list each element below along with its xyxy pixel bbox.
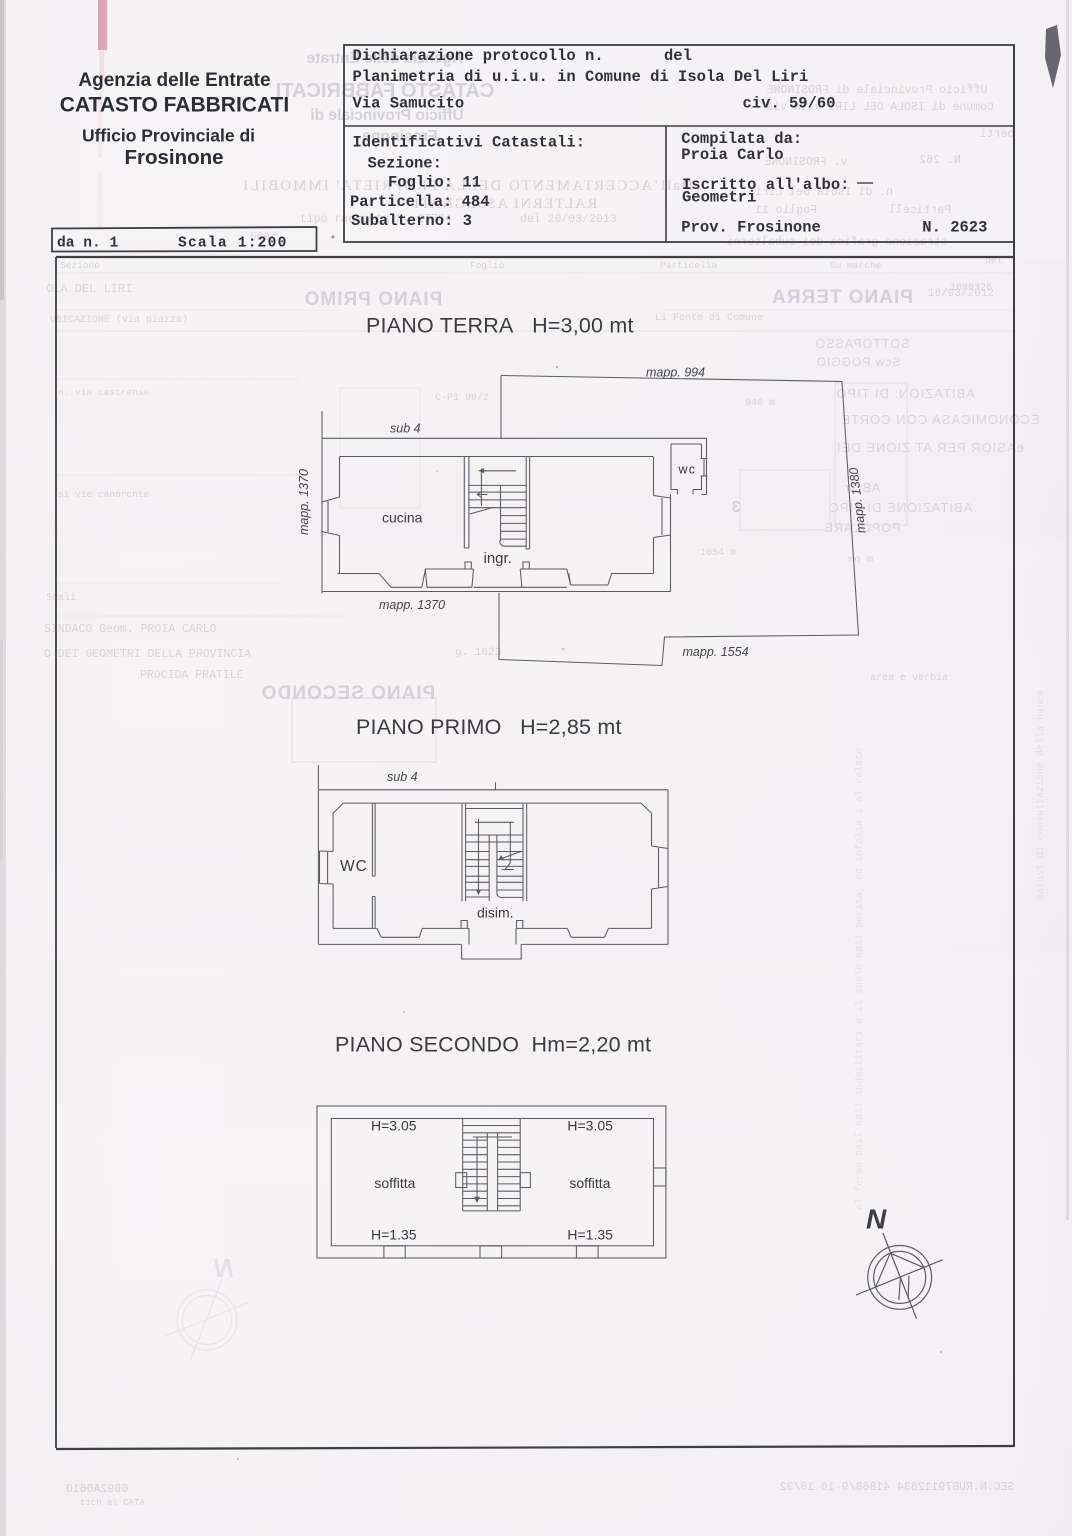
svg-text:0092A0610: 0092A0610	[66, 1483, 128, 1496]
svg-text:N: N	[213, 1253, 233, 1283]
svg-text:Foglio 11: Foglio 11	[755, 204, 817, 217]
svg-text:Via Samucito: Via Samucito	[353, 95, 465, 113]
svg-text:Prov. Frosinone: Prov. Frosinone	[681, 219, 821, 237]
svg-text:3: 3	[731, 499, 740, 516]
svg-text:Frosinone: Frosinone	[124, 146, 223, 169]
svg-text:OLA DEL LIRI: OLA DEL LIRI	[46, 282, 132, 296]
svg-text:del 20/03/2013: del 20/03/2013	[520, 213, 617, 226]
svg-text:wc: wc	[678, 463, 697, 477]
svg-text:Sezione: Sezione	[60, 260, 100, 271]
svg-text:soffitta: soffitta	[569, 1175, 610, 1191]
svg-text:Dichiarazione protocollo n.: Dichiarazione protocollo n.	[353, 47, 604, 65]
svg-text:Foglio: 11: Foglio: 11	[388, 174, 481, 192]
svg-text:mapp. 1370: mapp. 1370	[297, 469, 311, 535]
svg-text:sub 4: sub 4	[390, 422, 421, 436]
svg-text:Identificativi Catastali:: Identificativi Catastali:	[353, 134, 586, 152]
svg-text:ABITAZION: DI TIPO: ABITAZION: DI TIPO	[835, 386, 975, 401]
svg-text:PROCIDA PRATILE: PROCIDA PRATILE	[140, 669, 244, 682]
svg-text:H=1.35: H=1.35	[567, 1227, 613, 1243]
svg-text:si vie canorchie: si vie canorchie	[58, 489, 150, 500]
svg-text:PIANO TERRA H=3,00 mt: PIANO TERRA H=3,00 mt	[366, 314, 634, 338]
svg-text:Scali: Scali	[46, 592, 76, 604]
svg-text:Subalterno: 3: Subalterno: 3	[351, 212, 472, 230]
svg-text:mapp. 1554: mapp. 1554	[683, 645, 749, 659]
svg-text:H=1.35: H=1.35	[371, 1227, 417, 1243]
svg-text:mapp. 994: mapp. 994	[646, 366, 705, 380]
svg-text:SEC.N.RUB79112834 41868/9-1: SEC.N.RUB79112834 41868/9-16 10/32	[780, 1481, 1015, 1494]
svg-text:area e verbia: area e verbia	[870, 672, 948, 684]
svg-text:cucina: cucina	[382, 510, 423, 526]
svg-text:WC: WC	[340, 858, 368, 875]
svg-text:el fermo bail bail indmilitari: el fermo bail bail indmilitari e il suol…	[854, 748, 866, 1210]
svg-text:SOTTOPASSO: SOTTOPASSO	[815, 337, 910, 351]
svg-text:N: N	[866, 1204, 887, 1235]
svg-text:1654 m: 1654 m	[700, 548, 736, 559]
svg-text:berti: berti	[980, 128, 1015, 141]
svg-text:Scala 1:200: Scala 1:200	[178, 236, 288, 252]
svg-text:940 m: 940 m	[745, 398, 775, 409]
svg-text:Li Fonte di Comune: Li Fonte di Comune	[655, 312, 763, 324]
svg-text:civ. 59/60: civ. 59/60	[743, 95, 836, 113]
svg-text:Agenzia delle Entrate: Agenzia delle Entrate	[78, 70, 270, 91]
svg-text:eASIOR PER AT ZIONE DEI: eASIOR PER AT ZIONE DEI	[836, 440, 1024, 455]
svg-text:Proia Carlo: Proia Carlo	[681, 146, 783, 164]
svg-text:mq m: mq m	[848, 554, 873, 566]
svg-text:tich al CATA: tich al CATA	[80, 1498, 145, 1508]
svg-text:O DEI GEOMETRI DELLA PROVINCIA: O DEI GEOMETRI DELLA PROVINCIA	[44, 648, 251, 661]
svg-text:H=3.05: H=3.05	[371, 1118, 417, 1134]
svg-text:Planimetria di u.i.u. in Comun: Planimetria di u.i.u. in Comune di Isola…	[353, 68, 809, 86]
svg-text:PIANO TERRA: PIANO TERRA	[771, 287, 913, 308]
svg-text:PIANO SECONDO Hm=2,20 mt: PIANO SECONDO Hm=2,20 mt	[335, 1033, 651, 1057]
svg-text:Foglio: Foglio	[470, 260, 505, 271]
svg-text:g. 1623: g. 1623	[455, 647, 501, 659]
svg-text:N. 2623: N. 2623	[922, 219, 987, 237]
svg-text:catast di consultazione della: catast di consultazione della banca	[1035, 690, 1047, 900]
svg-text:ingr.: ingr.	[484, 550, 512, 567]
svg-text:sub 4: sub 4	[387, 770, 418, 784]
svg-text:Scw POGGIO: Scw POGGIO	[816, 355, 901, 369]
svg-text:CATASTO FABBRICATI: CATASTO FABBRICATI	[60, 94, 289, 117]
svg-text:mapp. 1370: mapp. 1370	[379, 598, 445, 612]
svg-text:SINDACO Geom. PROIA CARLO: SINDACO Geom. PROIA CARLO	[44, 623, 217, 636]
svg-text:N. 262: N. 262	[919, 154, 961, 167]
svg-text:disim.: disim.	[477, 905, 514, 921]
svg-text:Particella: 484: Particella: 484	[350, 193, 490, 211]
svg-text:da n. 1: da n. 1	[57, 236, 119, 252]
svg-text:PIANO PRIMO: PIANO PRIMO	[304, 289, 443, 310]
svg-text:H=3.05: H=3.05	[567, 1118, 613, 1134]
svg-text:UBICAZIONE (via piazza): UBICAZIONE (via piazza)	[50, 314, 188, 326]
svg-text:del: del	[664, 47, 692, 65]
svg-text:C-P1 99/2: C-P1 99/2	[435, 392, 489, 404]
svg-text:1080326: 1080326	[950, 283, 992, 294]
svg-text:Ufficio Provinciale di: Ufficio Provinciale di	[82, 126, 255, 146]
svg-text:Su marche: Su marche	[830, 260, 882, 271]
svg-text:Geometri: Geometri	[682, 189, 756, 207]
svg-text:Sezione:: Sezione:	[368, 155, 442, 173]
svg-text:soffitta: soffitta	[374, 1175, 415, 1191]
svg-text:Particella: Particella	[660, 260, 717, 271]
svg-text:PIANO PRIMO H=2,85 mt: PIANO PRIMO H=2,85 mt	[356, 715, 622, 739]
svg-text:PIANO SECONDO: PIANO SECONDO	[261, 683, 436, 704]
svg-text:Particell: Particell	[889, 204, 951, 217]
svg-text:ECONOMICASA CON CORTE: ECONOMICASA CON CORTE	[840, 412, 1039, 427]
svg-text:n. via castrense: n. via castrense	[58, 387, 150, 398]
